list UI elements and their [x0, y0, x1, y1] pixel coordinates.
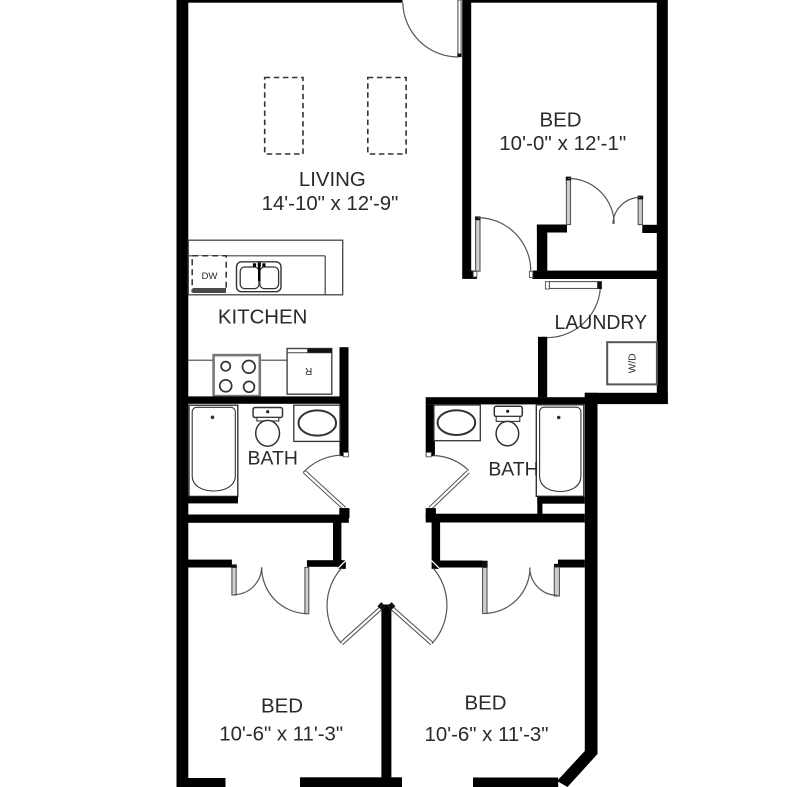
svg-text:W/D: W/D [628, 353, 639, 373]
svg-text:BED: BED [540, 109, 582, 131]
svg-text:14'-10" x 12'-9": 14'-10" x 12'-9" [262, 193, 399, 215]
svg-text:KITCHEN: KITCHEN [218, 307, 308, 329]
svg-text:LIVING: LIVING [299, 169, 366, 191]
svg-text:DW: DW [202, 271, 219, 282]
svg-text:BATH: BATH [248, 447, 298, 469]
svg-text:R: R [305, 365, 312, 376]
svg-text:LAUNDRY: LAUNDRY [555, 312, 648, 334]
svg-text:BED: BED [261, 695, 303, 717]
svg-text:10'-6" x 11'-3": 10'-6" x 11'-3" [425, 724, 549, 746]
svg-text:10'-0" x 12'-1": 10'-0" x 12'-1" [499, 133, 626, 155]
svg-text:BATH: BATH [488, 459, 538, 481]
svg-text:BED: BED [465, 692, 507, 714]
svg-text:10'-6" x 11'-3": 10'-6" x 11'-3" [219, 724, 343, 746]
